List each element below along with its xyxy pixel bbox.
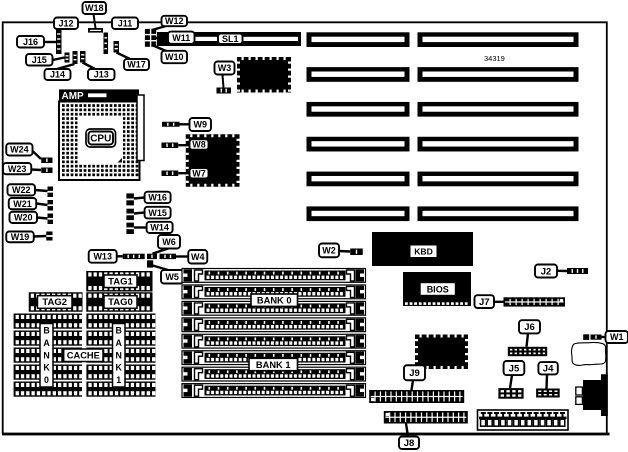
svg-text:W21: W21 — [13, 199, 32, 209]
svg-text:CACHE: CACHE — [67, 351, 100, 361]
svg-text:B: B — [116, 326, 122, 336]
svg-text:W23: W23 — [8, 164, 27, 174]
svg-text:W2: W2 — [322, 246, 336, 256]
svg-text:J16: J16 — [23, 37, 38, 47]
svg-text:B: B — [43, 326, 49, 336]
svg-text:0: 0 — [44, 375, 49, 385]
svg-text:BIOS: BIOS — [427, 285, 449, 295]
svg-text:W10: W10 — [165, 52, 184, 62]
svg-text:TAG0: TAG0 — [108, 297, 133, 308]
svg-text:W3: W3 — [218, 63, 232, 73]
svg-text:BANK 0: BANK 0 — [257, 296, 292, 306]
svg-text:J6: J6 — [524, 322, 535, 333]
svg-text:J11: J11 — [118, 18, 133, 28]
svg-text:W1: W1 — [610, 332, 624, 342]
svg-text:K: K — [43, 363, 50, 373]
svg-text:CPU: CPU — [90, 134, 111, 145]
svg-text:W5: W5 — [165, 272, 179, 282]
svg-text:A: A — [116, 338, 123, 348]
svg-text:J9: J9 — [409, 368, 420, 379]
svg-text:J8: J8 — [404, 438, 415, 449]
svg-text:W6: W6 — [162, 237, 176, 247]
svg-text:TAG1: TAG1 — [108, 276, 133, 287]
svg-text:W18: W18 — [85, 3, 104, 13]
svg-text:W12: W12 — [165, 16, 184, 26]
svg-text:J13: J13 — [94, 70, 109, 80]
svg-text:J12: J12 — [58, 18, 73, 28]
svg-text:A: A — [43, 338, 50, 348]
svg-text:W22: W22 — [12, 185, 31, 195]
svg-text:N: N — [43, 350, 49, 360]
svg-text:KBD: KBD — [414, 246, 433, 256]
svg-text:J4: J4 — [543, 364, 554, 375]
svg-text:J7: J7 — [479, 297, 490, 308]
svg-text:TAG2: TAG2 — [42, 297, 67, 308]
svg-text:W7: W7 — [192, 168, 206, 178]
svg-text:W8: W8 — [192, 140, 206, 150]
svg-text:K: K — [116, 363, 123, 373]
svg-text:J5: J5 — [509, 363, 520, 374]
svg-text:W15: W15 — [148, 208, 167, 218]
svg-text:BANK 1: BANK 1 — [256, 360, 291, 370]
svg-text:AMP: AMP — [62, 91, 85, 102]
svg-text:W13: W13 — [93, 252, 112, 262]
svg-text:W24: W24 — [10, 145, 29, 155]
svg-text:J15: J15 — [32, 55, 47, 65]
svg-text:34319: 34319 — [484, 54, 505, 63]
svg-text:W16: W16 — [148, 193, 167, 203]
svg-text:N: N — [116, 350, 122, 360]
svg-text:W11: W11 — [172, 33, 190, 43]
svg-text:W20: W20 — [14, 213, 33, 223]
svg-text:W17: W17 — [127, 60, 146, 70]
svg-text:J2: J2 — [541, 266, 552, 277]
svg-text:W14: W14 — [150, 223, 169, 233]
svg-text:W4: W4 — [191, 252, 205, 262]
svg-text:W9: W9 — [194, 120, 208, 130]
svg-text:W19: W19 — [11, 232, 30, 242]
svg-text:J14: J14 — [50, 70, 65, 80]
svg-text:1: 1 — [116, 375, 121, 385]
svg-text:SL1: SL1 — [222, 34, 239, 44]
